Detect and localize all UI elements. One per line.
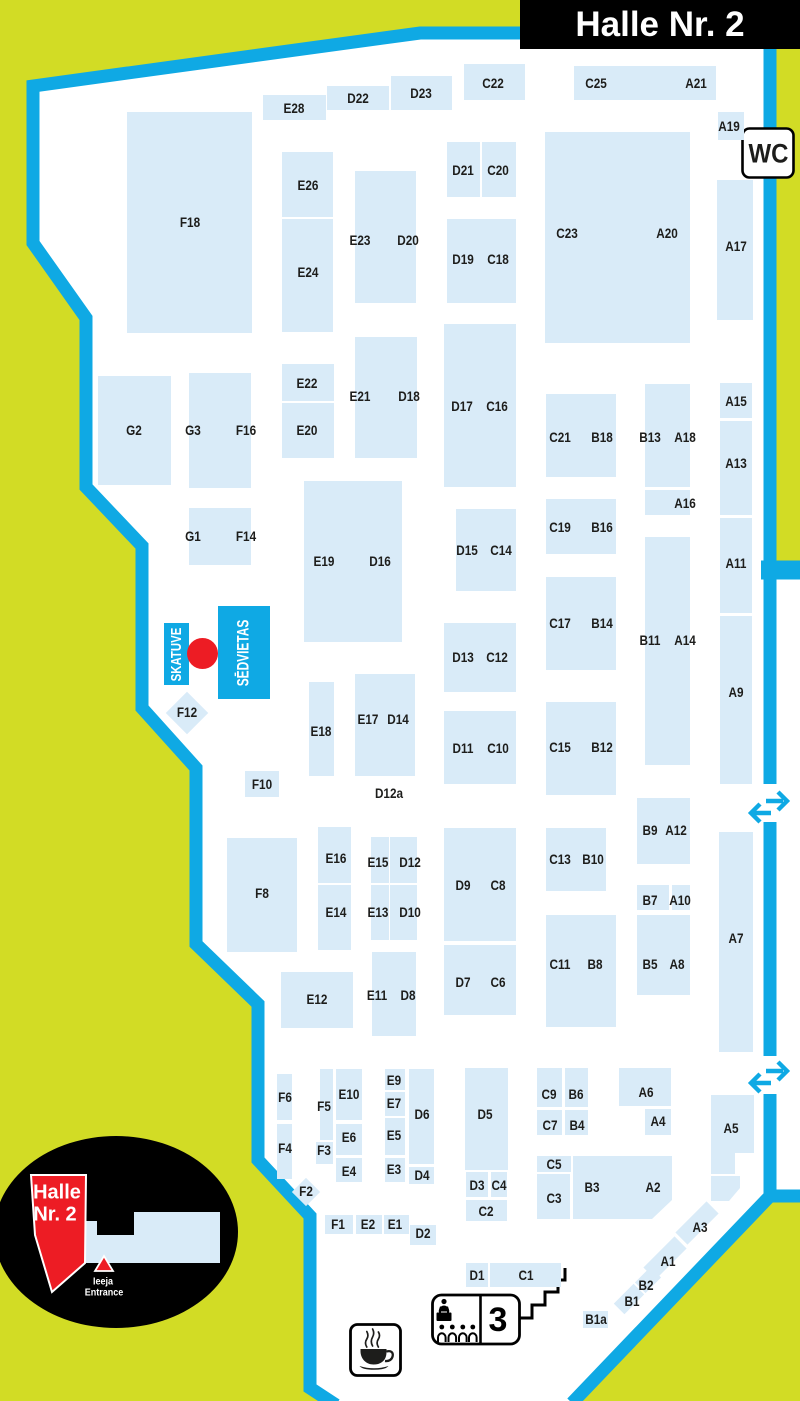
svg-text:3: 3: [489, 1301, 508, 1339]
svg-text:WC: WC: [749, 139, 789, 169]
